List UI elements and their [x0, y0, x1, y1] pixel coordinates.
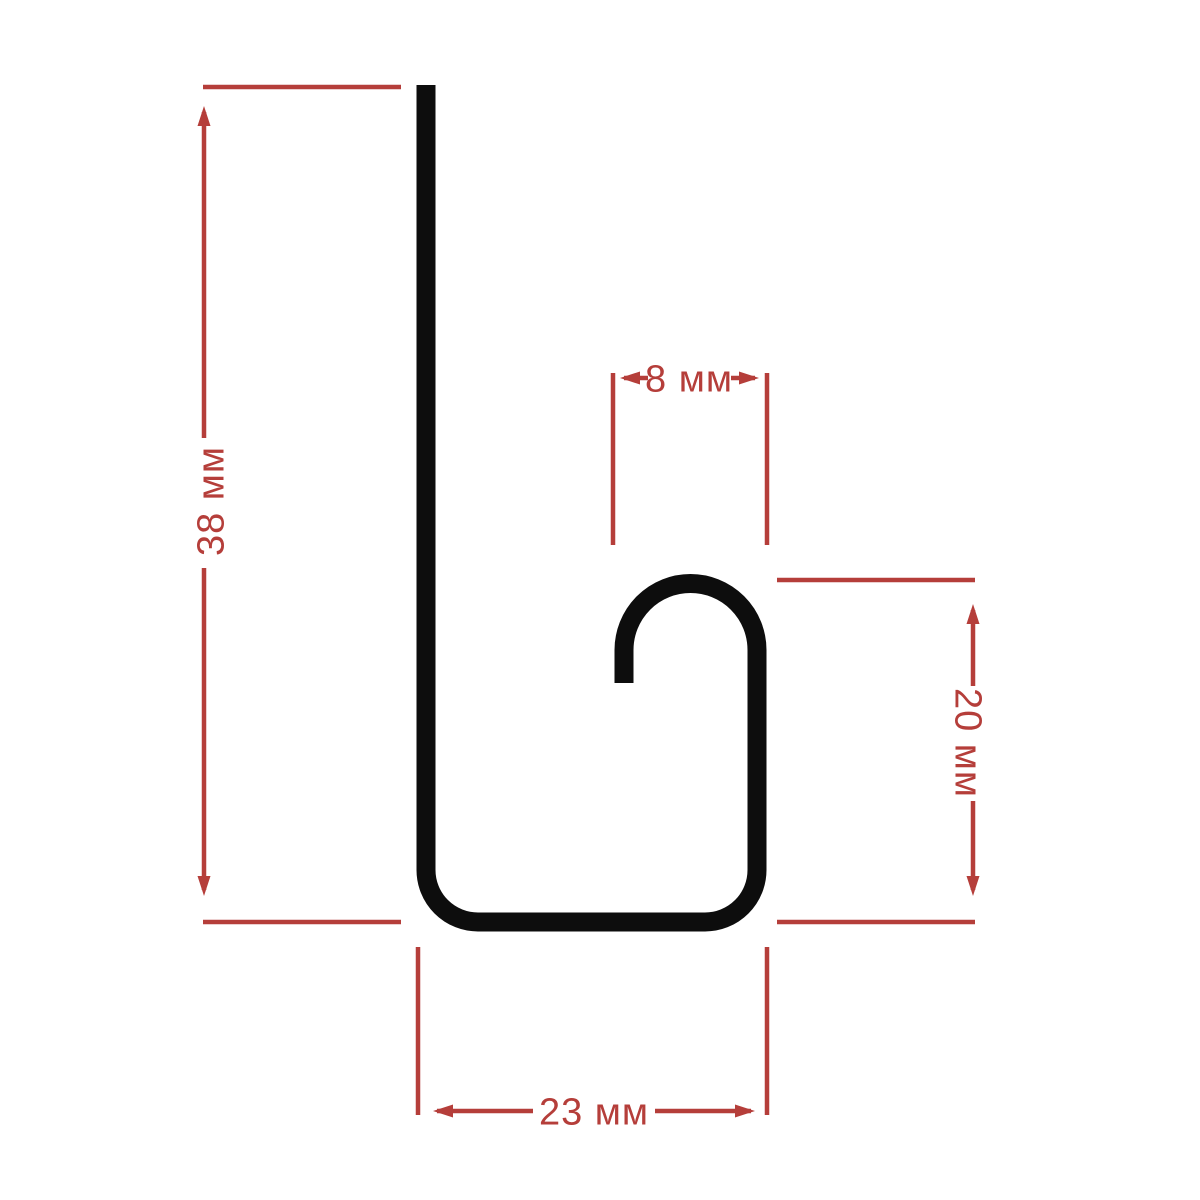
- arrow-left-icon: [433, 1105, 453, 1118]
- dimension-label-23mm: 23 мм: [539, 1091, 649, 1133]
- profile-path: [426, 85, 757, 922]
- dimension-base-width-23mm: 23 мм: [418, 947, 767, 1133]
- drawing-canvas: 38 мм 8 мм 20 мм: [0, 0, 1200, 1200]
- dimension-label-8mm: 8 мм: [645, 358, 733, 400]
- dimension-height-38mm: 38 мм: [190, 87, 401, 922]
- arrow-right-icon: [739, 372, 759, 385]
- arrow-right-icon: [735, 1105, 755, 1118]
- arrow-up-icon: [198, 106, 211, 126]
- profile-outline: [426, 85, 757, 922]
- technical-drawing: 38 мм 8 мм 20 мм: [0, 0, 1200, 1200]
- dimension-hook-width-8mm: 8 мм: [613, 358, 767, 545]
- arrow-left-icon: [620, 372, 640, 385]
- arrow-up-icon: [967, 604, 980, 624]
- dimension-label-20mm: 20 мм: [947, 688, 989, 798]
- dimension-hook-height-20mm: 20 мм: [777, 580, 989, 922]
- arrow-down-icon: [967, 876, 980, 896]
- dimension-label-38mm: 38 мм: [190, 446, 232, 556]
- arrow-down-icon: [198, 876, 211, 896]
